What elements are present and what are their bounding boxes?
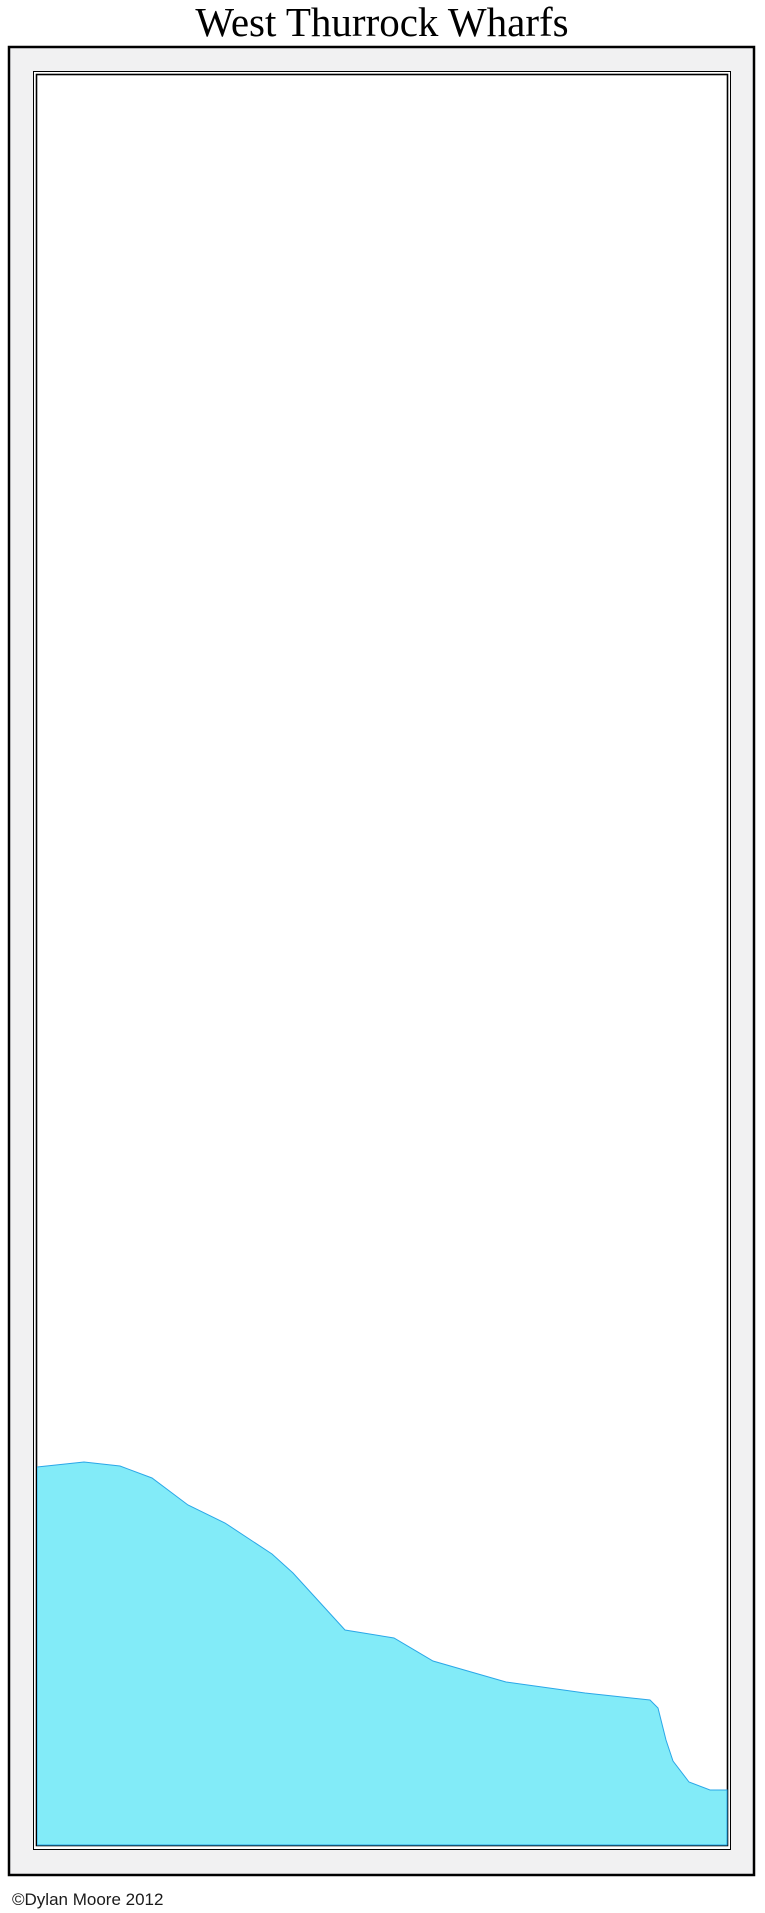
svg-text:West Thurrock Wharfs: West Thurrock Wharfs <box>195 0 568 45</box>
svg-text:©Dylan Moore 2012: ©Dylan Moore 2012 <box>12 1890 163 1909</box>
